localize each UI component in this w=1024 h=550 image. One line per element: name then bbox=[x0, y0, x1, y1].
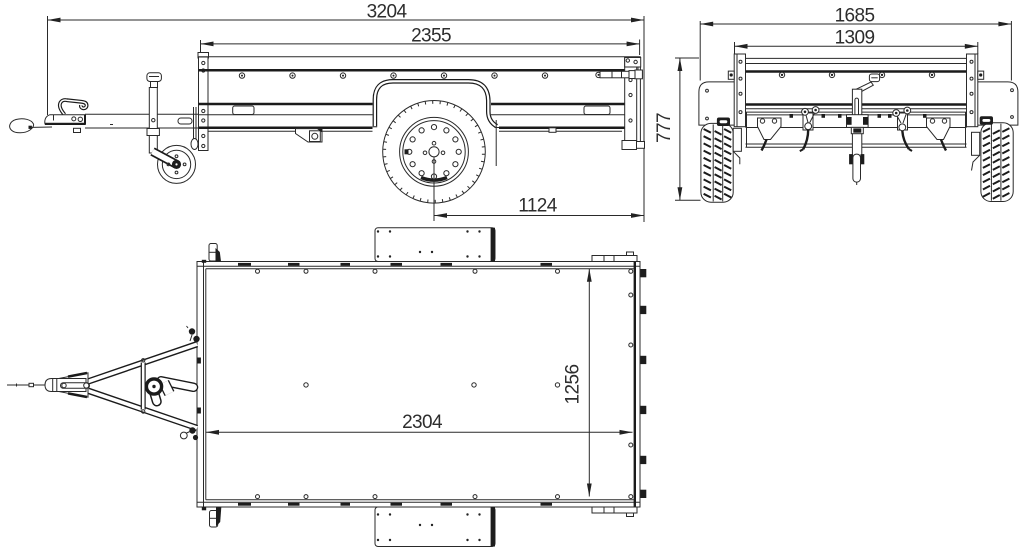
svg-text:2304: 2304 bbox=[402, 412, 443, 433]
svg-text:777: 777 bbox=[654, 113, 675, 143]
svg-text:1309: 1309 bbox=[835, 28, 875, 49]
svg-text:2355: 2355 bbox=[411, 25, 451, 46]
svg-text:1124: 1124 bbox=[518, 196, 557, 217]
svg-text:1685: 1685 bbox=[835, 6, 875, 27]
svg-text:1256: 1256 bbox=[563, 365, 584, 405]
svg-text:3204: 3204 bbox=[367, 2, 408, 23]
